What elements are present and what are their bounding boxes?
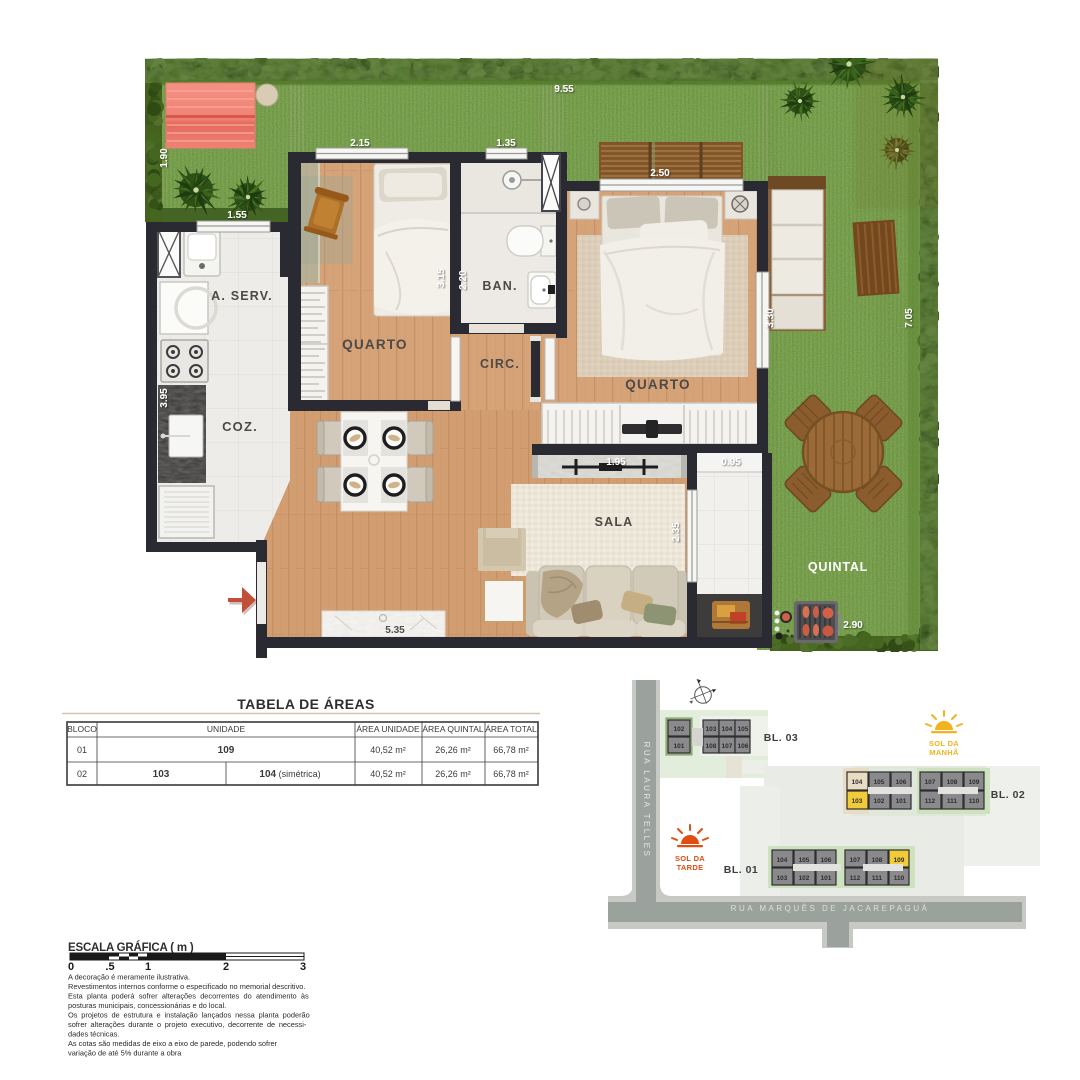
svg-text:104 (simétrica): 104 (simétrica) [259,769,320,780]
svg-text:2.20: 2.20 [458,270,469,290]
svg-text:40,52 m²: 40,52 m² [370,745,406,755]
svg-text:111: 111 [872,875,883,882]
svg-text:COZ.: COZ. [222,419,258,434]
svg-text:105: 105 [738,726,749,733]
svg-text:QUARTO: QUARTO [342,337,407,352]
svg-text:0.95: 0.95 [721,457,741,468]
svg-text:110: 110 [969,798,980,805]
svg-text:101: 101 [674,743,685,750]
svg-text:SALA: SALA [595,515,634,529]
svg-text:1.90: 1.90 [159,148,170,168]
svg-text:105: 105 [799,857,810,864]
svg-text:108: 108 [872,857,883,864]
svg-text:105: 105 [874,779,885,786]
svg-text:103: 103 [777,875,788,882]
svg-text:3.30: 3.30 [765,308,776,328]
svg-text:101: 101 [896,798,907,805]
svg-text:108: 108 [947,779,958,786]
svg-text:TABELA DE ÁREAS: TABELA DE ÁREAS [237,696,374,712]
svg-text:TARDE: TARDE [677,863,704,872]
svg-text:BAN.: BAN. [482,279,517,293]
svg-text:.5: .5 [105,961,114,973]
svg-text:ÁREA UNIDADE: ÁREA UNIDADE [356,724,420,734]
svg-text:Esta planta poderá sofrer alte: Esta planta poderá sofrer alterações dec… [68,992,309,1001]
svg-text:103: 103 [153,769,170,780]
svg-text:106: 106 [821,857,832,864]
svg-text:0: 0 [68,961,74,973]
svg-text:Revestimentos internos conform: Revestimentos internos conforme o especi… [68,982,305,991]
svg-text:ÁREA TOTAL: ÁREA TOTAL [485,724,537,734]
svg-text:2.15: 2.15 [350,138,370,149]
svg-text:108: 108 [706,743,717,750]
svg-text:109: 109 [218,745,235,756]
svg-text:SOL DA: SOL DA [675,854,705,863]
svg-text:BL. 02: BL. 02 [991,789,1026,801]
svg-text:BLOCO: BLOCO [67,724,97,734]
svg-text:2: 2 [223,961,229,973]
svg-text:MANHÃ: MANHÃ [929,748,959,757]
svg-text:1.35: 1.35 [496,138,516,149]
svg-text:112: 112 [925,798,936,805]
svg-text:7.05: 7.05 [904,308,915,328]
svg-text:BL. 01: BL. 01 [724,864,759,876]
svg-text:107: 107 [722,743,733,750]
svg-text:posturas municipais, concessio: posturas municipais, concessionárias e d… [68,1001,226,1010]
svg-text:102: 102 [674,726,685,733]
svg-text:109: 109 [894,857,905,864]
svg-text:102: 102 [799,875,810,882]
svg-text:103: 103 [852,798,863,805]
svg-text:ÁREA QUINTAL: ÁREA QUINTAL [422,724,484,734]
svg-text:107: 107 [925,779,936,786]
svg-text:A decoração é meramente ilustr: A decoração é meramente ilustrativa. [68,973,190,982]
svg-text:sofrer alterações durante o pr: sofrer alterações durante o projeto exec… [68,1020,307,1029]
svg-text:66,78 m²: 66,78 m² [493,745,529,755]
svg-text:A. SERV.: A. SERV. [211,289,273,303]
svg-text:02: 02 [77,769,87,779]
svg-text:102: 102 [874,798,885,805]
svg-text:2.35: 2.35 [671,522,682,542]
svg-text:variação de até 5% durante a o: variação de até 5% durante a obra [68,1049,182,1058]
svg-text:Os projetos de estrutura e ins: Os projetos de estrutura e instalação la… [68,1011,310,1020]
svg-text:CIRC.: CIRC. [480,357,520,371]
svg-text:dades técnicas.: dades técnicas. [68,1030,119,1039]
svg-text:3.15: 3.15 [436,268,447,288]
svg-text:2.50: 2.50 [650,168,670,179]
svg-text:QUARTO: QUARTO [625,377,690,392]
svg-text:1: 1 [145,961,151,973]
svg-text:107: 107 [850,857,861,864]
svg-text:112: 112 [850,875,861,882]
svg-text:5.35: 5.35 [385,625,405,636]
svg-text:BL. 03: BL. 03 [764,732,799,744]
svg-text:110: 110 [894,875,905,882]
svg-text:9.55: 9.55 [554,84,574,95]
svg-text:106: 106 [896,779,907,786]
svg-text:104: 104 [852,779,863,786]
svg-text:QUINTAL: QUINTAL [808,560,868,574]
svg-text:104: 104 [777,857,788,864]
svg-text:3: 3 [300,961,306,973]
svg-text:40,52 m²: 40,52 m² [370,769,406,779]
svg-text:111: 111 [947,798,958,805]
svg-text:101: 101 [821,875,832,882]
svg-text:109: 109 [969,779,980,786]
svg-text:ESCALA GRÁFICA ( m ): ESCALA GRÁFICA ( m ) [68,941,194,954]
svg-text:1.95: 1.95 [606,457,626,468]
svg-text:106: 106 [738,743,749,750]
svg-text:104: 104 [722,726,733,733]
svg-text:103: 103 [706,726,717,733]
svg-text:UNIDADE: UNIDADE [207,724,246,734]
svg-text:01: 01 [77,745,87,755]
svg-text:As cotas são medidas de eixo a: As cotas são medidas de eixo a eixo de p… [68,1039,278,1048]
svg-text:26,26 m²: 26,26 m² [435,769,471,779]
svg-text:1.55: 1.55 [227,210,247,221]
svg-text:26,26 m²: 26,26 m² [435,745,471,755]
svg-text:RUA MARQUÊS DE JACAREPAGUÁ: RUA MARQUÊS DE JACAREPAGUÁ [731,904,930,913]
svg-text:SOL DA: SOL DA [929,739,959,748]
svg-text:66,78 m²: 66,78 m² [493,769,529,779]
svg-text:3.95: 3.95 [159,388,170,408]
svg-text:2.90: 2.90 [843,620,863,631]
svg-text:RUA LAURA TELLES: RUA LAURA TELLES [642,742,651,859]
